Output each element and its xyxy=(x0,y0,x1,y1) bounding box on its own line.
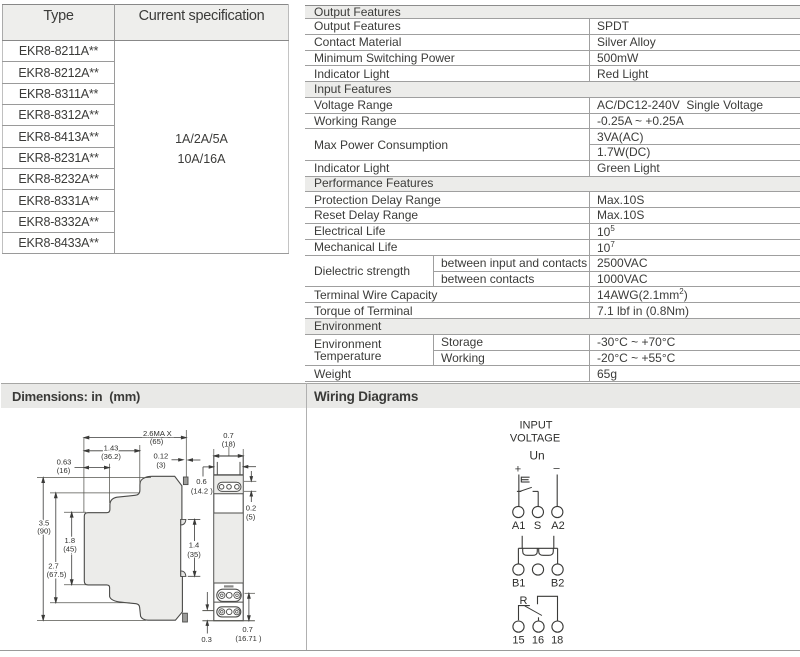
svg-text:0.7: 0.7 xyxy=(242,625,253,634)
svg-text:+: + xyxy=(515,463,521,475)
svg-text:(18): (18) xyxy=(222,440,236,449)
svg-text:S: S xyxy=(534,520,541,532)
svg-text:(67.5): (67.5) xyxy=(47,570,67,579)
svg-text:0.12: 0.12 xyxy=(154,451,169,460)
svg-text:0.6: 0.6 xyxy=(196,477,207,486)
svg-text:Un: Un xyxy=(529,448,544,462)
svg-text:16: 16 xyxy=(532,635,544,647)
svg-text:A2: A2 xyxy=(551,520,564,532)
svg-text:(35): (35) xyxy=(187,550,201,559)
svg-text:(16.71 ): (16.71 ) xyxy=(235,634,262,643)
svg-text:B1: B1 xyxy=(512,577,525,589)
svg-text:INPUT: INPUT xyxy=(520,419,553,431)
svg-text:(3): (3) xyxy=(156,460,166,469)
svg-text:(5): (5) xyxy=(246,513,256,522)
svg-text:(45): (45) xyxy=(63,545,77,554)
svg-text:B2: B2 xyxy=(551,577,564,589)
svg-text:0.3: 0.3 xyxy=(201,635,212,644)
svg-text:15: 15 xyxy=(512,635,524,647)
svg-text:0.2: 0.2 xyxy=(246,504,257,513)
svg-text:(65): (65) xyxy=(150,437,164,446)
svg-text:VOLTAGE: VOLTAGE xyxy=(510,432,560,444)
svg-text:18: 18 xyxy=(551,635,563,647)
svg-text:–: – xyxy=(553,462,560,474)
svg-text:(14.2 ): (14.2 ) xyxy=(191,486,213,495)
svg-text:(36.2): (36.2) xyxy=(101,452,121,461)
svg-text:1.4: 1.4 xyxy=(189,541,200,550)
svg-text:A1: A1 xyxy=(512,520,525,532)
svg-text:(16): (16) xyxy=(57,466,71,475)
svg-text:(90): (90) xyxy=(37,526,51,535)
